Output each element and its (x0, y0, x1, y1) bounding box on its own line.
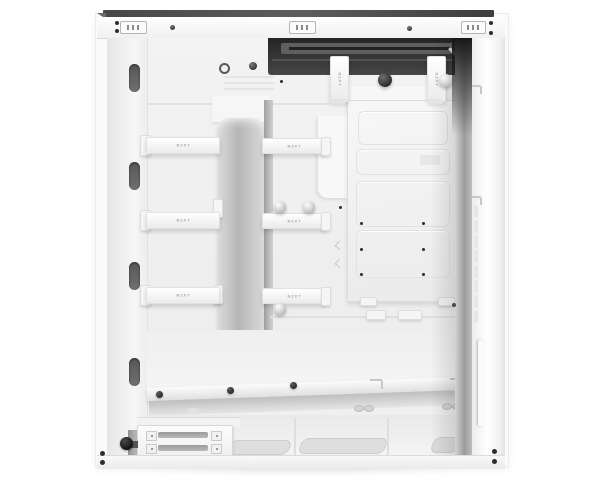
nzxt-logo-text: NZXT (434, 72, 438, 86)
rear-panel-column (107, 38, 148, 456)
floor-rail (387, 418, 389, 455)
rail-vent-slot (461, 21, 486, 34)
tray-lower-edge (270, 316, 457, 318)
bracket-vent-slot (158, 432, 208, 438)
corner-screw (489, 31, 493, 35)
front-clip (472, 85, 482, 94)
ssd-screw-hole (422, 273, 425, 276)
front-vent-dash (474, 250, 478, 263)
rail-screw (170, 25, 175, 30)
cable-routing-oval (129, 64, 140, 92)
front-vent-dash (474, 310, 478, 323)
bracket-clip (146, 431, 157, 441)
cable-routing-oval (129, 162, 140, 190)
nzxt-logo-text: NZXT (287, 144, 301, 148)
front-panel-edge (472, 38, 505, 458)
ssd-screw-hole (422, 248, 425, 251)
cable-strap-left: NZXT (146, 287, 220, 304)
nzxt-logo-text: NZXT (176, 143, 190, 147)
front-vent-dash (474, 205, 478, 218)
cable-routing-oval (129, 262, 140, 290)
tray-dot (280, 80, 283, 83)
ssd-screw-hole (360, 273, 363, 276)
slot-bars (127, 25, 140, 30)
bracket-clip (211, 444, 222, 454)
tray-screw (249, 62, 257, 70)
cable-strap-left: NZXT (146, 212, 220, 229)
tray-tab (398, 310, 422, 320)
top-panel-edge (103, 10, 494, 17)
bracket-clip (211, 431, 222, 441)
product-photo-stage: NZXT NZXT NZXT NZXT NZXT NZXT NZXT NZXT (0, 0, 600, 480)
rubber-pin (290, 382, 297, 389)
front-clip (472, 196, 482, 205)
bottom-screw (100, 451, 105, 456)
floor-rail (294, 418, 296, 455)
etched-label-area (224, 76, 274, 90)
corner-screw (115, 21, 119, 25)
cable-strap-mid: NZXT (262, 213, 326, 229)
rail-vent-slot (289, 21, 316, 34)
front-vent-dash (474, 265, 478, 278)
strap-end-tab (321, 212, 331, 231)
rail-screw (407, 26, 412, 31)
floor-vent (225, 440, 292, 455)
ssd-screw-hole (422, 222, 425, 225)
corner-screw (489, 21, 493, 25)
cable-channel-bar (217, 118, 264, 338)
thumbscrew (439, 74, 452, 87)
ssd-screw-hole (360, 248, 363, 251)
thumbscrew-dark (378, 73, 392, 87)
thumbscrew (274, 201, 286, 213)
vent-slat (289, 47, 451, 50)
front-retention-bar (478, 340, 483, 426)
nzxt-logo-text: NZXT (337, 72, 341, 86)
tray-dot (339, 206, 342, 209)
plate-tab (360, 297, 377, 306)
rubber-pin (227, 387, 234, 394)
front-vent-dash (474, 295, 478, 308)
rubber-pin (156, 391, 163, 398)
standoff-ring (219, 63, 230, 74)
cable-strap-mid: NZXT (262, 288, 326, 304)
thumbscrew (303, 201, 315, 213)
rail-vent-slot (120, 21, 147, 34)
cable-strap-left: NZXT (146, 137, 220, 154)
corner-screw (115, 29, 119, 33)
cable-strap-vertical: NZXT (330, 56, 349, 102)
slot-bars (467, 25, 480, 30)
shelf-emboss-oval (186, 408, 200, 413)
bottom-screw (492, 449, 497, 454)
floor-vent (297, 438, 389, 454)
nzxt-logo-text: NZXT (287, 294, 301, 298)
strap-endcap (331, 99, 346, 104)
strap-end-tab (321, 287, 331, 306)
front-vent-dash (474, 235, 478, 248)
strap-endcap (428, 99, 443, 104)
nzxt-logo-text: NZXT (287, 219, 301, 223)
bottom-rail (97, 455, 505, 469)
front-vent-dash (474, 220, 478, 233)
front-dot (452, 303, 456, 307)
bottom-screw (492, 459, 497, 464)
bottom-screw (100, 460, 105, 465)
thumbscrew (274, 303, 286, 315)
bay-clip (370, 379, 383, 389)
tray-tab (366, 310, 386, 320)
bay-oval (354, 405, 364, 412)
psu-thumbscrew (120, 437, 133, 450)
nzxt-logo-text: NZXT (176, 293, 190, 297)
bracket-clip (146, 444, 157, 454)
ssd-screw-hole (360, 222, 363, 225)
bracket-vent-slot (158, 445, 208, 451)
strap-end-tab (321, 137, 331, 156)
front-vent-dash (474, 280, 478, 293)
bay-oval (364, 405, 374, 412)
slot-bars (296, 25, 309, 30)
cable-routing-oval (129, 358, 140, 386)
nzxt-logo-text: NZXT (176, 218, 190, 222)
cable-strap-mid: NZXT (262, 138, 326, 154)
